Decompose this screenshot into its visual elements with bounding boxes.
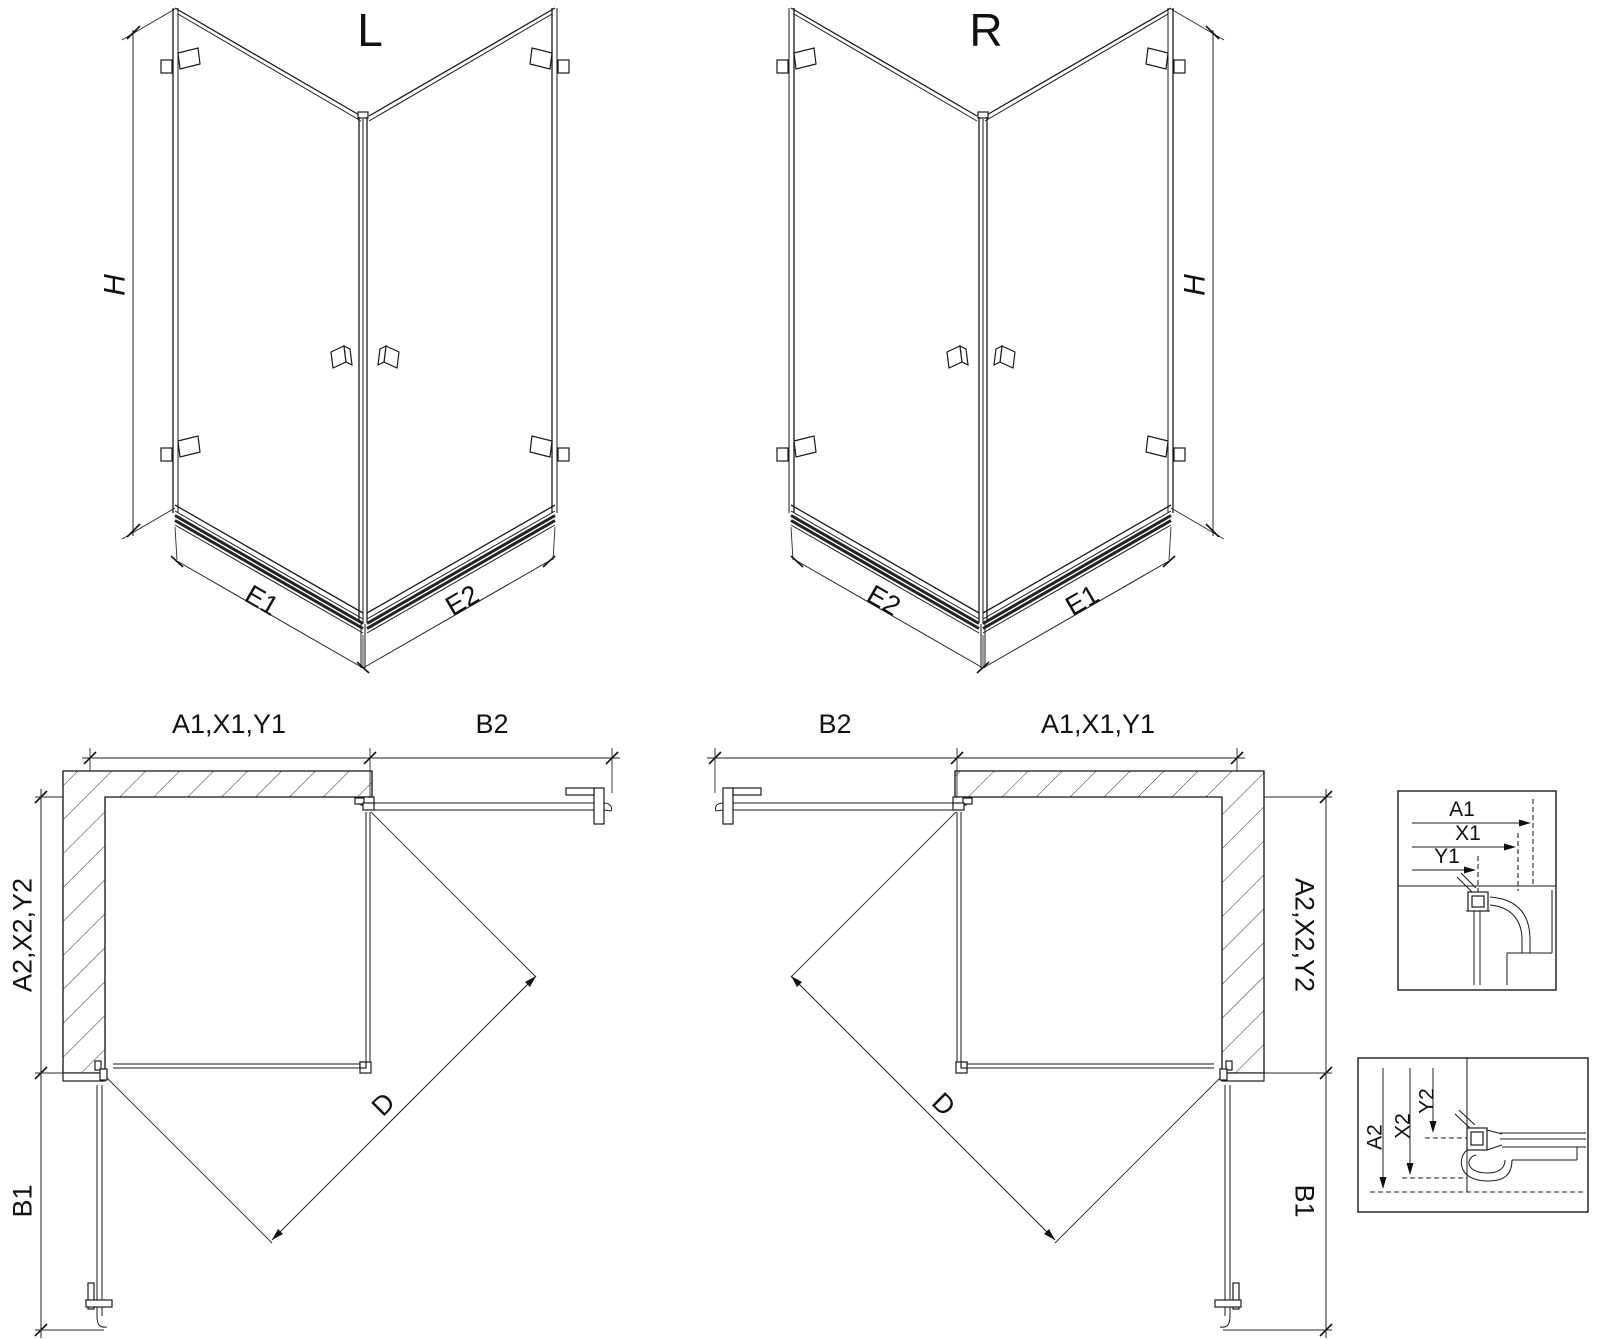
dim-label-e1: E1 (1060, 579, 1104, 621)
variant-label-right: R (969, 4, 1002, 56)
plan-view-left: A1,X1,Y1 B2 A2,X2,Y2 B1 (7, 709, 620, 1338)
diagonal-dimension-line (791, 976, 1055, 1240)
dim-label-e1: E1 (240, 579, 284, 621)
detail-dim-a2: A2 (1363, 1124, 1386, 1150)
dim-label-e2: E2 (440, 579, 484, 621)
iso-left-geometry (122, 8, 569, 673)
door-closed-bottom (113, 1064, 360, 1068)
dim-label-a1x1y1: A1,X1,Y1 (172, 709, 286, 739)
dim-label-b1: B1 (1290, 1184, 1320, 1217)
wall-end-cap (1222, 1073, 1264, 1081)
dim-label-e2: E2 (862, 579, 906, 621)
door-swing-line (371, 812, 536, 977)
dim-label-b1: B1 (7, 1184, 37, 1217)
door-closed-bottom (967, 1064, 1214, 1068)
variant-label-left: L (357, 4, 383, 56)
door-open-b1 (1215, 1085, 1241, 1327)
door-open-b1 (86, 1085, 112, 1327)
dim-label-a2x2y2: A2,X2,Y2 (7, 878, 37, 992)
wall-end-cap (63, 1073, 105, 1081)
plan-view-right: B2 A1,X1,Y1 A2,X2,Y2 B1 (707, 709, 1332, 1338)
door-open-b2 (372, 788, 612, 824)
door-closed-left (956, 812, 967, 1073)
iso-view-right: R H E2 E1 (777, 4, 1224, 673)
diagonal-dimension-line (272, 976, 536, 1240)
detail-dim-y1: Y1 (1434, 845, 1460, 868)
detail-dim-x2: X2 (1391, 1113, 1414, 1139)
detail-dim-a1: A1 (1449, 798, 1475, 821)
dim-label-height: H (1179, 274, 1212, 296)
door-swing-line (1055, 1078, 1220, 1243)
dim-label-b2: B2 (475, 709, 508, 739)
dim-label-a1x1y1: A1,X1,Y1 (1041, 709, 1155, 739)
dim-label-height: H (99, 274, 132, 296)
iso-right-geometry (777, 8, 1224, 673)
detail-box-bottom: A2 X2 Y2 (1358, 1058, 1588, 1212)
iso-view-left: L H E1 E2 (99, 4, 570, 673)
wall (63, 771, 372, 1073)
door-closed-right (360, 812, 371, 1073)
door-swing-line (791, 812, 956, 977)
detail-box-top: A1 X1 Y1 (1398, 791, 1556, 990)
dim-label-a2x2y2: A2,X2,Y2 (1290, 878, 1320, 992)
dim-label-b2: B2 (818, 709, 851, 739)
detail-dim-y2: Y2 (1415, 1088, 1438, 1114)
wall (955, 771, 1264, 1073)
shower-enclosure-diagram: L H E1 E2 R H E2 E1 A1,X1,Y1 B2 A2,X2,Y2… (0, 0, 1600, 1339)
door-open-b2 (715, 788, 955, 824)
door-swing-line (107, 1078, 272, 1243)
detail-dim-x1: X1 (1455, 822, 1481, 845)
technical-drawing-page: L H E1 E2 R H E2 E1 A1,X1,Y1 B2 A2,X2,Y2… (0, 0, 1600, 1339)
